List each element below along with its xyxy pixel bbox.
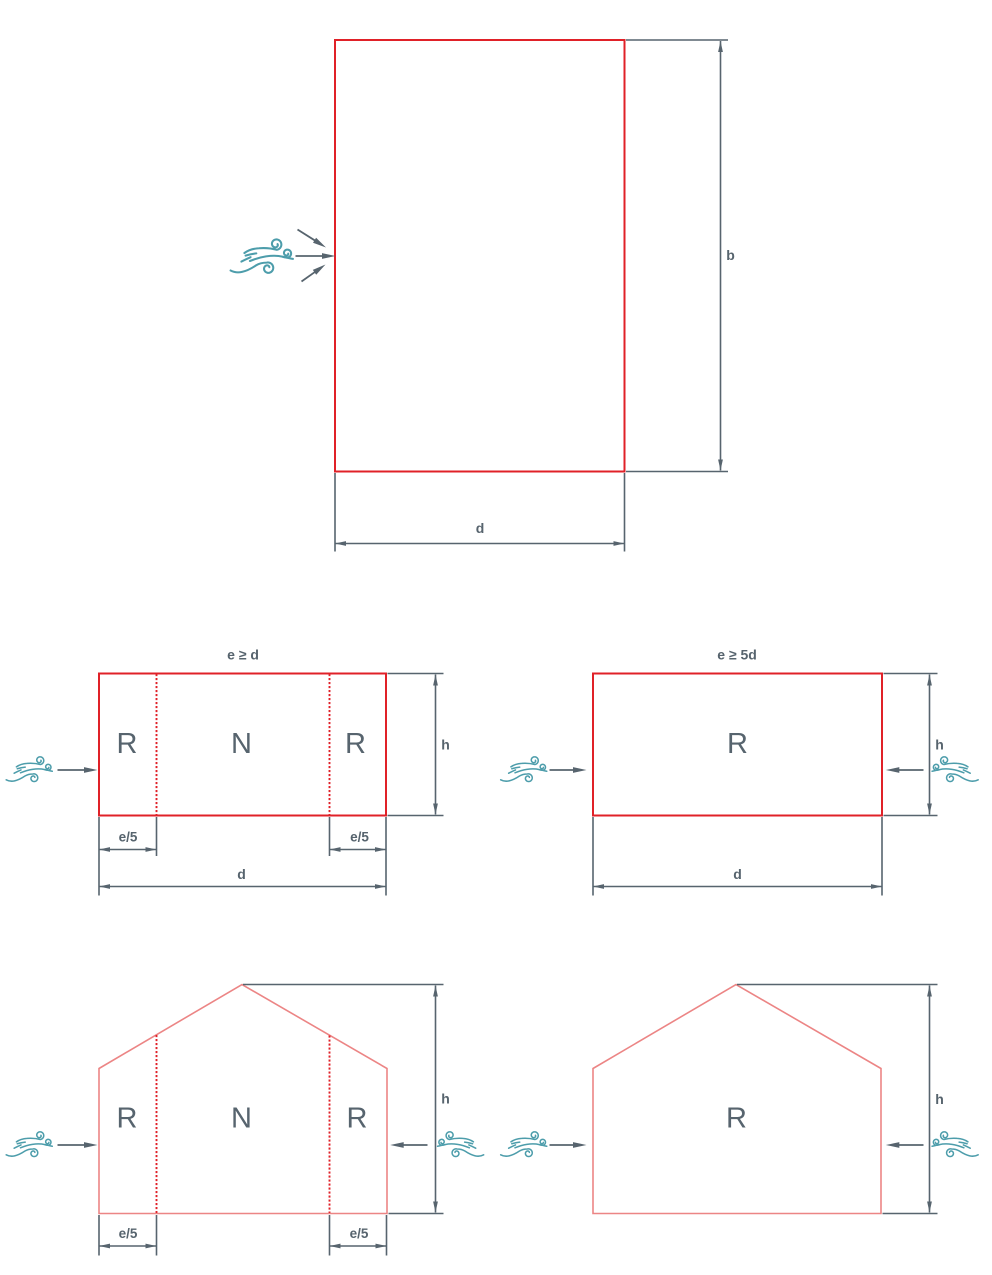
svg-text:R: R: [345, 728, 366, 760]
svg-text:e ≥ 5d: e ≥ 5d: [717, 647, 757, 663]
svg-text:R: R: [117, 728, 138, 760]
svg-text:h: h: [441, 737, 450, 753]
svg-text:d: d: [733, 866, 742, 882]
svg-text:h: h: [935, 1091, 944, 1107]
svg-text:b: b: [726, 247, 735, 263]
svg-text:R: R: [117, 1103, 138, 1135]
svg-text:R: R: [347, 1103, 368, 1135]
svg-text:e/5: e/5: [350, 1226, 369, 1241]
svg-text:d: d: [476, 520, 485, 536]
svg-text:h: h: [441, 1091, 450, 1107]
svg-text:h: h: [935, 737, 944, 753]
svg-text:N: N: [231, 728, 252, 760]
svg-text:e ≥ d: e ≥ d: [227, 647, 259, 663]
svg-text:N: N: [231, 1103, 252, 1135]
svg-text:d: d: [237, 866, 246, 882]
svg-text:e/5: e/5: [350, 830, 369, 845]
svg-text:e/5: e/5: [119, 1226, 138, 1241]
svg-text:R: R: [726, 1103, 747, 1135]
svg-text:e/5: e/5: [119, 830, 138, 845]
svg-text:R: R: [727, 728, 748, 760]
